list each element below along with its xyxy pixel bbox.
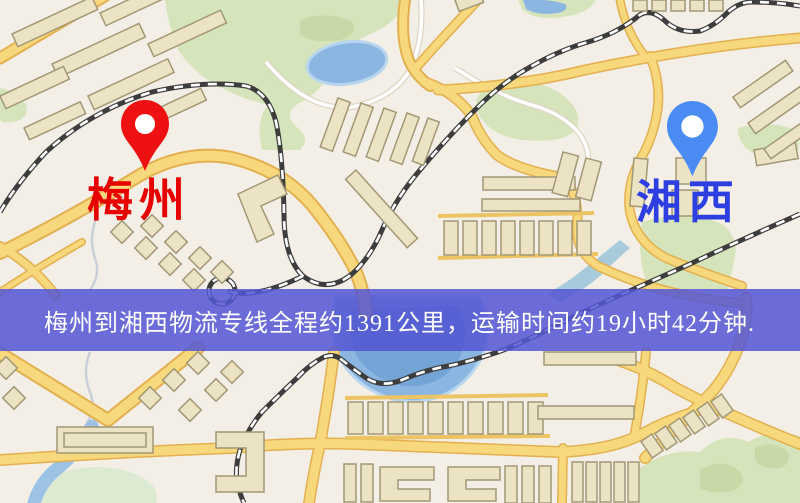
destination-label: 湘西 [636, 177, 740, 228]
route-info-banner: 梅州到湘西物流专线全程约1391公里，运输时间约19小时42分钟. [0, 289, 800, 351]
origin-pin-hole [135, 114, 155, 134]
map-view[interactable]: 梅州 湘西 梅州到湘西物流专线全程约1391公里，运输时间约19小时42分钟. [0, 0, 800, 503]
route-info-text: 梅州到湘西物流专线全程约1391公里，运输时间约19小时42分钟. [44, 303, 755, 338]
origin-label: 梅州 [87, 175, 191, 226]
map-canvas[interactable]: 梅州 湘西 [0, 0, 800, 503]
destination-pin-hole [681, 115, 703, 137]
